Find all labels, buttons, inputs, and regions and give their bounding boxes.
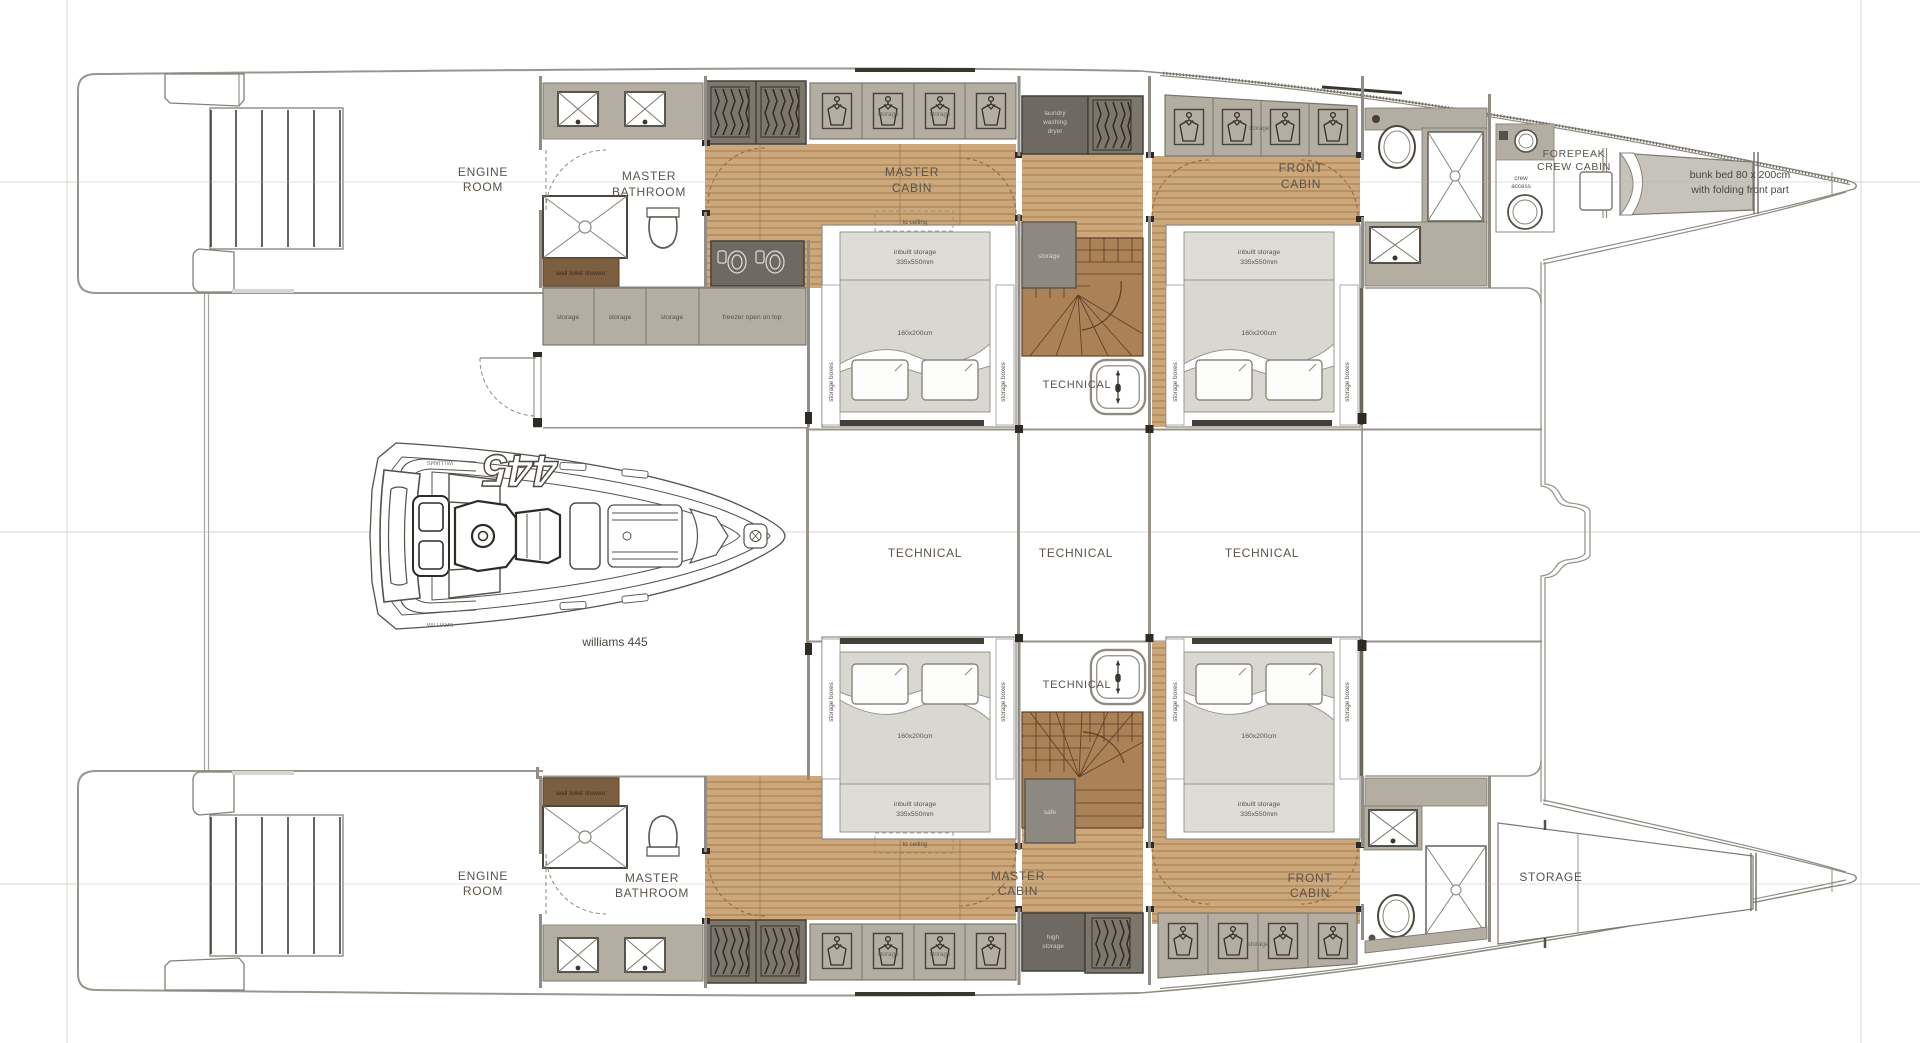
svg-text:wall toilet shower: wall toilet shower: [555, 790, 606, 797]
svg-text:storage boxes: storage boxes: [828, 682, 835, 722]
svg-text:storage: storage: [929, 111, 951, 118]
svg-text:MASTER: MASTER: [622, 169, 676, 183]
svg-text:with folding front part: with folding front part: [1690, 184, 1789, 196]
svg-text:to ceiling: to ceiling: [903, 219, 928, 226]
svg-text:TECHNICAL: TECHNICAL: [1225, 546, 1299, 560]
svg-text:335x550mm: 335x550mm: [896, 259, 934, 266]
svg-text:TECHNICAL: TECHNICAL: [1039, 546, 1113, 560]
svg-text:335x550mm: 335x550mm: [1240, 259, 1278, 266]
svg-text:335x550mm: 335x550mm: [896, 811, 934, 818]
svg-text:storage boxes: storage boxes: [1000, 362, 1007, 402]
svg-text:storage: storage: [1248, 125, 1270, 132]
svg-text:high: high: [1047, 934, 1060, 941]
svg-text:STORAGE: STORAGE: [1519, 870, 1582, 884]
svg-text:WILLIAMS: WILLIAMS: [427, 623, 454, 629]
svg-text:storage boxes: storage boxes: [1172, 682, 1179, 722]
svg-text:MASTER: MASTER: [885, 165, 939, 179]
svg-text:storage: storage: [661, 314, 684, 321]
svg-text:CABIN: CABIN: [1281, 177, 1321, 191]
svg-text:inbuilt storage: inbuilt storage: [894, 801, 937, 808]
svg-text:CABIN: CABIN: [998, 884, 1038, 898]
svg-text:160x200cm: 160x200cm: [1241, 330, 1276, 337]
svg-text:ENGINE: ENGINE: [458, 869, 508, 883]
svg-text:CABIN: CABIN: [892, 181, 932, 195]
svg-text:storage: storage: [877, 111, 899, 118]
svg-text:storage boxes: storage boxes: [828, 362, 835, 402]
svg-text:freezer open on top: freezer open on top: [723, 314, 782, 321]
svg-text:safe: safe: [1044, 809, 1057, 816]
svg-text:FOREPEAK: FOREPEAK: [1543, 148, 1606, 160]
svg-text:160x200cm: 160x200cm: [1241, 733, 1276, 740]
svg-text:ROOM: ROOM: [463, 884, 503, 898]
svg-text:TECHNICAL: TECHNICAL: [1043, 679, 1112, 691]
svg-text:storage: storage: [557, 314, 580, 321]
svg-text:FRONT: FRONT: [1279, 161, 1324, 175]
svg-text:BATHROOM: BATHROOM: [615, 886, 689, 900]
svg-text:CREW CABIN: CREW CABIN: [1537, 161, 1611, 173]
svg-text:ENGINE: ENGINE: [458, 165, 508, 179]
svg-text:storage: storage: [929, 951, 951, 958]
svg-text:washing: washing: [1042, 119, 1067, 126]
svg-text:inbuilt storage: inbuilt storage: [894, 249, 937, 256]
svg-text:inbuilt storage: inbuilt storage: [1238, 801, 1281, 808]
svg-text:dryer: dryer: [1048, 128, 1064, 135]
svg-text:access: access: [1511, 183, 1531, 190]
svg-text:BATHROOM: BATHROOM: [612, 185, 686, 199]
svg-text:storage: storage: [1038, 253, 1060, 260]
svg-text:bunk bed 80 x 200cm: bunk bed 80 x 200cm: [1690, 169, 1791, 181]
svg-text:storage: storage: [1042, 943, 1064, 950]
svg-text:to ceiling: to ceiling: [903, 841, 928, 848]
svg-text:wall toilet shower: wall toilet shower: [555, 270, 606, 277]
svg-text:storage boxes: storage boxes: [1344, 682, 1351, 722]
svg-text:storage: storage: [877, 951, 899, 958]
svg-text:crew: crew: [1514, 175, 1528, 182]
svg-text:storage: storage: [609, 314, 632, 321]
svg-text:storage boxes: storage boxes: [1172, 362, 1179, 402]
svg-text:ROOM: ROOM: [463, 180, 503, 194]
svg-text:FRONT: FRONT: [1288, 871, 1333, 885]
svg-text:TECHNICAL: TECHNICAL: [888, 546, 962, 560]
svg-text:335x550mm: 335x550mm: [1240, 811, 1278, 818]
svg-text:445: 445: [481, 445, 558, 496]
svg-text:160x200cm: 160x200cm: [897, 733, 932, 740]
svg-text:160x200cm: 160x200cm: [897, 330, 932, 337]
svg-text:WILLIAMS: WILLIAMS: [427, 459, 454, 465]
svg-text:storage: storage: [1247, 941, 1269, 948]
svg-text:CABIN: CABIN: [1290, 886, 1330, 900]
svg-text:inbuilt storage: inbuilt storage: [1238, 249, 1281, 256]
svg-text:laundry: laundry: [1044, 110, 1066, 117]
svg-text:storage boxes: storage boxes: [1000, 682, 1007, 722]
svg-text:MASTER: MASTER: [625, 871, 679, 885]
svg-text:williams 445: williams 445: [581, 635, 648, 649]
svg-text:MASTER: MASTER: [991, 869, 1045, 883]
svg-text:storage boxes: storage boxes: [1344, 362, 1351, 402]
svg-text:TECHNICAL: TECHNICAL: [1043, 379, 1112, 391]
